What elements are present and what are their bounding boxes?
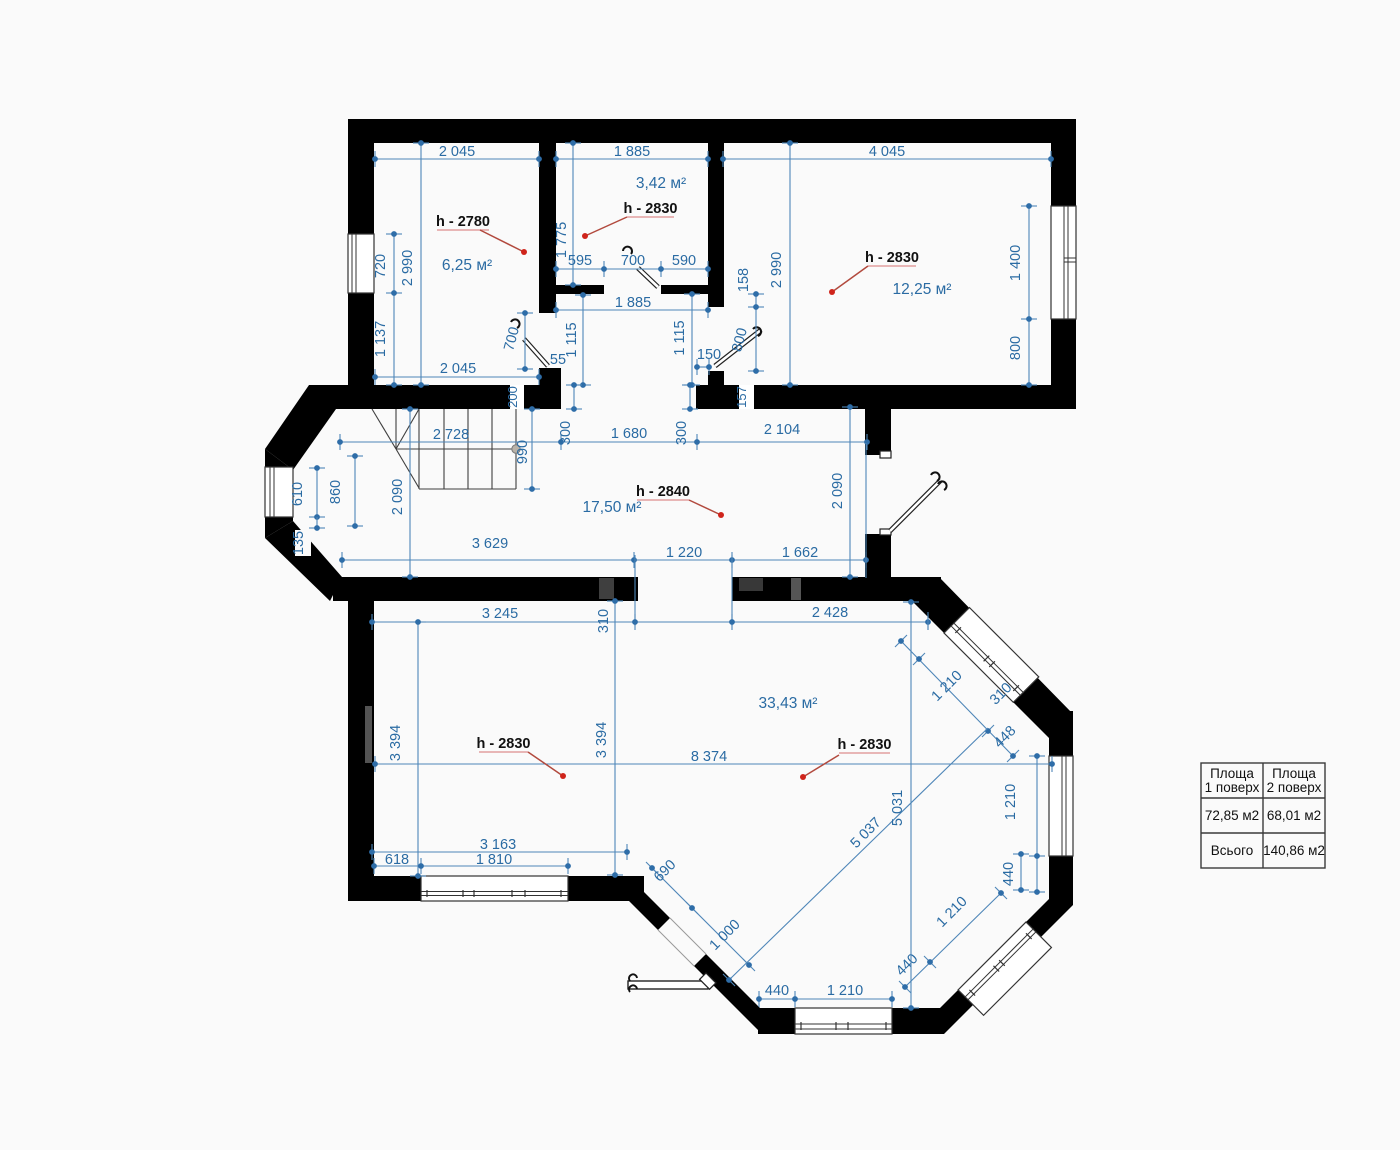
svg-text:72,85 м2: 72,85 м2 xyxy=(1205,808,1259,823)
svg-text:3,42 м²: 3,42 м² xyxy=(636,175,686,192)
svg-text:2 990: 2 990 xyxy=(769,252,785,288)
svg-text:h - 2830: h - 2830 xyxy=(477,736,531,752)
svg-text:Площа: Площа xyxy=(1210,766,1254,781)
svg-text:2 728: 2 728 xyxy=(433,427,469,443)
svg-text:1 885: 1 885 xyxy=(614,144,650,160)
svg-text:3 163: 3 163 xyxy=(480,837,516,853)
svg-text:h - 2830: h - 2830 xyxy=(865,250,919,266)
svg-text:2 090: 2 090 xyxy=(830,473,846,509)
svg-text:440: 440 xyxy=(765,983,789,999)
svg-text:158: 158 xyxy=(736,268,752,292)
svg-text:1 662: 1 662 xyxy=(782,545,818,561)
svg-text:h - 2780: h - 2780 xyxy=(436,214,490,230)
svg-text:135: 135 xyxy=(291,531,307,555)
svg-text:Всього: Всього xyxy=(1211,843,1253,858)
svg-text:800: 800 xyxy=(1008,336,1024,360)
svg-text:3 394: 3 394 xyxy=(594,722,610,758)
svg-text:150: 150 xyxy=(697,347,721,363)
svg-text:1 137: 1 137 xyxy=(373,321,389,357)
svg-text:33,43 м²: 33,43 м² xyxy=(759,695,818,712)
svg-text:300: 300 xyxy=(558,421,574,445)
svg-text:12,25 м²: 12,25 м² xyxy=(893,281,952,298)
svg-text:1 400: 1 400 xyxy=(1008,245,1024,281)
svg-text:5 031: 5 031 xyxy=(890,790,906,826)
svg-text:300: 300 xyxy=(674,421,690,445)
svg-text:1 810: 1 810 xyxy=(476,852,512,868)
svg-text:3 394: 3 394 xyxy=(388,725,404,761)
svg-text:2 104: 2 104 xyxy=(764,422,800,438)
svg-text:8 374: 8 374 xyxy=(691,749,727,765)
svg-text:1 115: 1 115 xyxy=(564,322,580,357)
svg-text:140,86 м2: 140,86 м2 xyxy=(1263,843,1325,858)
svg-text:157: 157 xyxy=(734,386,749,408)
svg-text:720: 720 xyxy=(373,254,389,278)
svg-text:200: 200 xyxy=(505,386,520,408)
svg-text:2 поверх: 2 поверх xyxy=(1267,780,1322,795)
svg-text:2 990: 2 990 xyxy=(400,250,416,286)
svg-text:6,25 м²: 6,25 м² xyxy=(442,257,492,274)
svg-text:h - 2840: h - 2840 xyxy=(636,484,690,500)
svg-text:Площа: Площа xyxy=(1272,766,1316,781)
svg-text:3 245: 3 245 xyxy=(482,606,518,622)
svg-text:2 045: 2 045 xyxy=(440,361,476,377)
svg-text:1 220: 1 220 xyxy=(666,545,702,561)
svg-text:310: 310 xyxy=(596,609,612,633)
svg-text:2 045: 2 045 xyxy=(439,144,475,160)
svg-text:h - 2830: h - 2830 xyxy=(624,201,678,217)
svg-text:1 885: 1 885 xyxy=(615,295,651,311)
svg-text:590: 590 xyxy=(672,253,696,269)
svg-text:17,50 м²: 17,50 м² xyxy=(583,499,642,516)
svg-text:3 629: 3 629 xyxy=(472,536,508,552)
svg-text:1 поверх: 1 поверх xyxy=(1205,780,1260,795)
svg-text:595: 595 xyxy=(568,253,592,269)
svg-text:618: 618 xyxy=(385,852,409,868)
svg-text:700: 700 xyxy=(621,253,645,269)
svg-text:68,01 м2: 68,01 м2 xyxy=(1267,808,1321,823)
svg-text:990: 990 xyxy=(515,440,531,464)
svg-text:2 090: 2 090 xyxy=(390,479,406,515)
svg-text:2 428: 2 428 xyxy=(812,605,848,621)
svg-text:1 115: 1 115 xyxy=(672,320,688,355)
svg-text:610: 610 xyxy=(290,482,306,506)
svg-text:860: 860 xyxy=(328,480,344,504)
svg-text:1 210: 1 210 xyxy=(827,983,863,999)
svg-text:440: 440 xyxy=(1001,862,1017,886)
svg-text:h - 2830: h - 2830 xyxy=(838,737,892,753)
svg-text:1 680: 1 680 xyxy=(611,426,647,442)
svg-text:4 045: 4 045 xyxy=(869,144,905,160)
svg-text:1 210: 1 210 xyxy=(1003,784,1019,820)
